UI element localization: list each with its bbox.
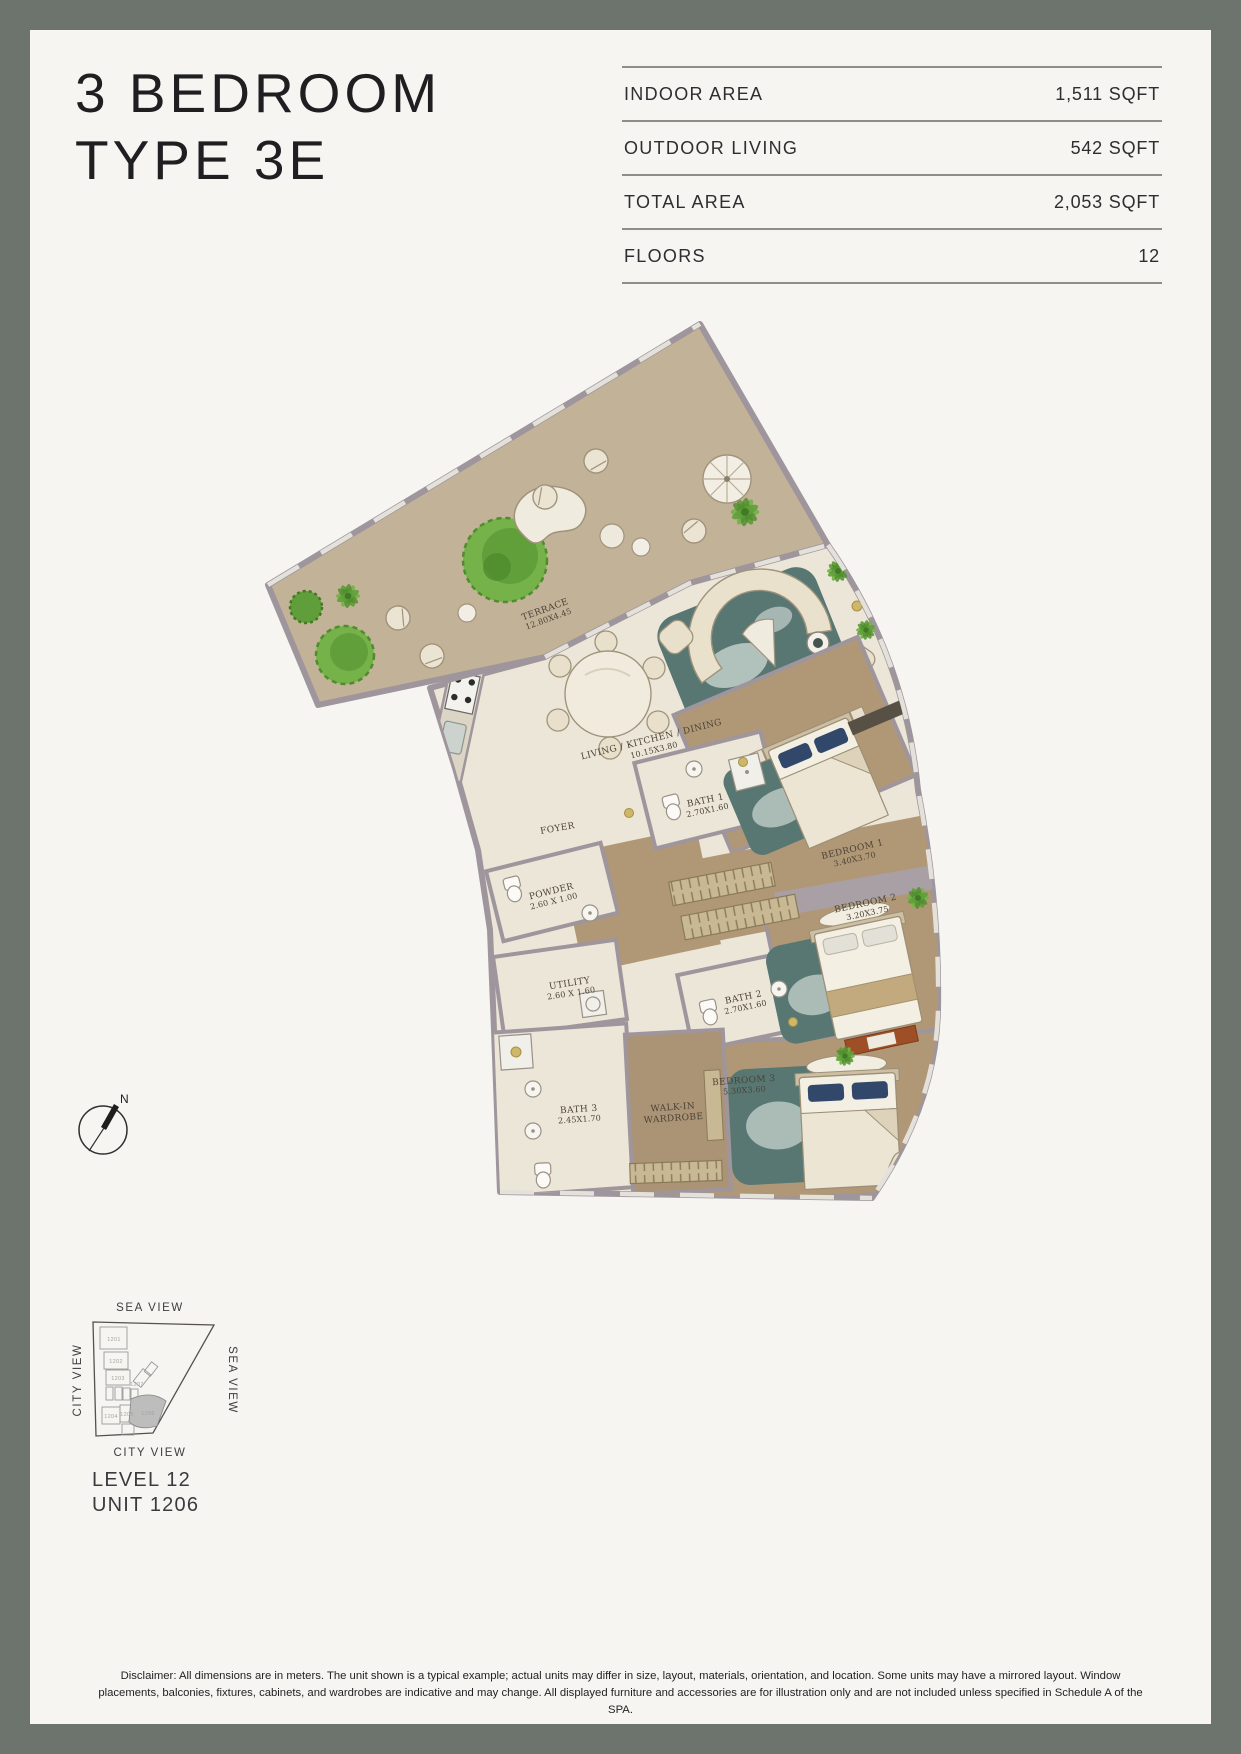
sink-icon xyxy=(525,1081,541,1097)
view-label-bottom: CITY VIEW xyxy=(114,1447,187,1459)
keyplan-unit: 1202 xyxy=(109,1359,122,1365)
brochure-page: 3 BEDROOM TYPE 3E INDOOR AREA 1,511 SQFT… xyxy=(0,0,1241,1754)
keyplan-unit: 1205 xyxy=(120,1412,133,1418)
view-label-top: SEA VIEW xyxy=(116,1302,184,1314)
keyplan-unit: 1204 xyxy=(104,1414,117,1420)
table-icon xyxy=(632,538,650,556)
view-label-left: CITY VIEW xyxy=(72,1344,84,1417)
sink-icon xyxy=(582,905,598,921)
pendant-light xyxy=(511,1047,522,1058)
sink-icon xyxy=(686,761,702,777)
pendant-light xyxy=(739,758,748,767)
level-label: LEVEL 12 xyxy=(92,1469,191,1491)
tree-icon xyxy=(316,626,374,684)
wardrobe-strip xyxy=(630,1160,723,1183)
compass-north-label: N xyxy=(120,1092,129,1106)
room-label-bath3: BATH 32.45X1.70 xyxy=(557,1104,601,1126)
toilet-icon xyxy=(534,1163,551,1189)
compass-icon: N xyxy=(79,1092,129,1154)
sink-icon xyxy=(771,981,787,997)
keyplan-unit: 1207 xyxy=(130,1382,143,1388)
table-icon xyxy=(600,524,624,548)
pendant-light xyxy=(789,1018,798,1027)
disclaimer-text: Disclaimer: All dimensions are in meters… xyxy=(90,1668,1151,1719)
view-label-right: SEA VIEW xyxy=(226,1346,238,1414)
sheet-background: 3 BEDROOM TYPE 3E INDOOR AREA 1,511 SQFT… xyxy=(30,30,1211,1724)
tree-icon xyxy=(762,342,838,418)
pendant-light xyxy=(625,809,634,818)
room-label-walkin: WALK-INWARDROBE xyxy=(643,1101,704,1126)
keyplan-unit-highlight-label: 1206 xyxy=(141,1411,154,1417)
bush-icon xyxy=(290,591,322,623)
floor-plan-canvas: TERRACE12.80X4.45 LIVING / KITCHEN / DIN… xyxy=(30,30,1211,1724)
keyplan-unit: 1203 xyxy=(111,1376,124,1382)
keyplan-diagram: SEA VIEW CITY VIEW SEA VIEW CITY VIEW xyxy=(72,1302,238,1516)
table-icon xyxy=(458,604,476,622)
keyplan-unit: 1201 xyxy=(107,1337,120,1343)
unit-label: UNIT 1206 xyxy=(92,1494,199,1516)
umbrella-icon xyxy=(703,455,751,503)
shower-icon xyxy=(499,1034,533,1070)
sink-icon xyxy=(525,1123,541,1139)
